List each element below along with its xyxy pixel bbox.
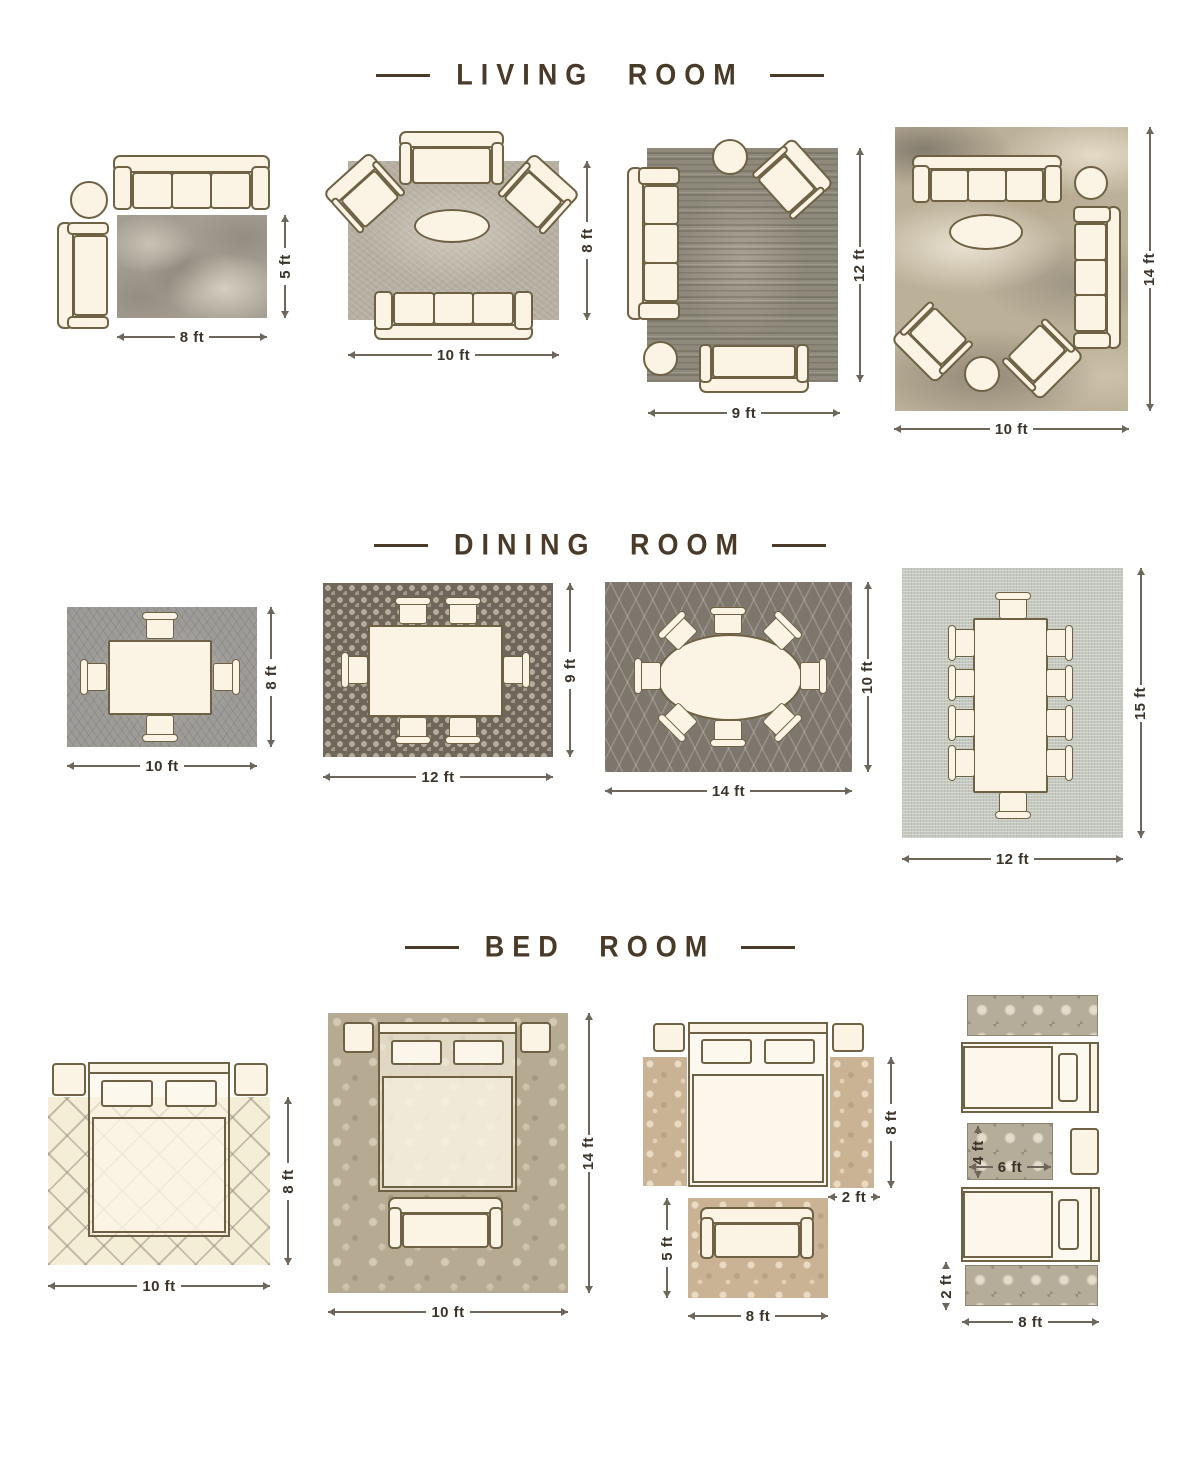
nightstand [52,1063,86,1096]
dimension-label: 12 ft [842,248,879,281]
nightstand [1070,1128,1099,1175]
pillow [101,1080,154,1106]
chair-back [445,597,480,605]
dimension-label: 14 ft [1132,252,1169,285]
sofa-arm [113,166,132,210]
chair-back [1065,745,1073,780]
sofa-back [113,155,270,173]
dimension: 9 ft [648,404,840,422]
dimension-label: 8 ft [569,228,606,253]
nightstand [343,1022,374,1053]
chair-seat [449,602,477,624]
rug [967,995,1098,1036]
title-rule [405,946,459,949]
dining-chair [397,597,429,625]
sofa-cushion [1074,223,1107,261]
dining-chair [948,627,976,659]
dimension-label: 10 ft [140,759,183,774]
coffee-table [949,214,1023,250]
nightstand [234,1063,268,1096]
dimension: 8 ft [578,161,596,320]
chair-seat [953,749,975,777]
chair-back [948,625,956,660]
section-title-bed-room: BED ROOM [0,929,1200,965]
chair-back [445,736,480,744]
sofa-cushion [643,185,679,225]
section-title-living-room: LIVING ROOM [0,57,1200,93]
dining-chair [799,660,827,692]
chair-seat [399,602,427,624]
dining-chair [948,707,976,739]
dimension: 8 ft [279,1097,297,1265]
dimension-label: 8 ft [741,1309,776,1324]
blanket [963,1191,1053,1259]
sofa-arm [638,167,680,185]
dining-chair [447,597,479,625]
chair-back [948,745,956,780]
dining-chair [712,607,744,635]
pillow [764,1039,816,1064]
dimension-label: 8 ft [873,1110,910,1135]
pillow [701,1039,753,1064]
dimension: 10 ft [894,420,1129,438]
dimension: 15 ft [1132,568,1150,838]
pillow [1058,1053,1079,1101]
dining-chair [948,667,976,699]
sofa-back [399,131,504,148]
sofa-arm [699,344,712,383]
dining-chair [1045,667,1073,699]
dimension-label: 8 ft [253,665,290,690]
sofa-arm [489,1207,503,1249]
section-title: DINING ROOM [454,528,746,561]
sofa [912,155,1062,203]
sofa-back [627,167,644,320]
headboard [88,1062,230,1074]
sofa-arm [374,291,393,330]
dining-chair [212,661,240,693]
bed [688,1022,828,1187]
sofa-back [388,1197,503,1214]
dimension-label: 5 ft [649,1236,686,1261]
dimension-label: 2 ft [928,1274,965,1299]
sofa-cushion [1074,259,1107,297]
dining-chair [447,716,479,744]
chair-seat [953,709,975,737]
sofa-arm [1073,206,1111,223]
dining-table [108,640,212,715]
dining-table [973,618,1048,793]
side-table [964,356,1000,392]
sofa [113,155,270,210]
dimension: 14 ft [605,782,852,800]
chair-seat [953,669,975,697]
dimension: 14 ft [1141,127,1159,411]
sofa-arm [67,316,109,329]
sofa-arm [1044,165,1062,203]
sofa-arm [638,302,680,320]
sofa-cushion [412,147,492,184]
sofa-cushion [472,292,514,325]
pillow [391,1040,442,1066]
bench [388,1197,503,1249]
sofa-cushion [171,172,212,209]
sofa-arm [251,166,270,210]
sofa-arm [796,344,809,383]
section-title-dining-room: DINING ROOM [0,527,1200,563]
title-rule [772,544,826,547]
sofa [57,222,109,329]
dimension: 10 ft [67,757,257,775]
blanket [92,1117,225,1233]
dimension: 8 ft [962,1313,1099,1331]
chair-back [522,652,530,687]
dimension: 12 ft [323,768,553,786]
dimension-label: 10 ft [432,348,475,363]
dimension-label: 10 ft [137,1279,180,1294]
twin-bed [961,1187,1100,1262]
title-rule [770,74,824,77]
chair-back [232,659,240,694]
sofa-arm [800,1217,814,1259]
sofa-cushion [714,1223,801,1258]
sofa-arm [399,142,412,185]
sofa-arm [491,142,504,185]
dimension: 10 ft [328,1303,568,1321]
chair-seat [639,662,661,690]
title-rule [741,946,795,949]
sofa-arm [1073,332,1111,349]
dimension-label: 6 ft [993,1160,1028,1175]
headboard [1089,1042,1099,1113]
chair-back [395,736,430,744]
sofa [399,131,504,185]
sofa-cushion [210,172,251,209]
dimension: 8 ft [262,607,280,747]
section-title: LIVING ROOM [456,58,744,91]
dimension-label: 9 ft [727,406,762,421]
bed [378,1022,517,1192]
chair-back [995,592,1030,600]
chair-seat [346,656,368,684]
dining-chair [948,747,976,779]
sofa-cushion [132,172,173,209]
nightstand [520,1022,551,1053]
dimension: 8 ft [688,1307,828,1325]
dining-chair [144,612,176,640]
sofa-arm [67,222,109,235]
dining-chair [80,661,108,693]
rug [643,1057,687,1186]
dimension-label: 8 ft [1013,1315,1048,1330]
bed [88,1062,230,1237]
dimension: 10 ft [348,346,559,364]
dimension: 9 ft [561,583,579,757]
sofa-back [1106,206,1121,349]
chair-back [1065,705,1073,740]
chair-back [948,665,956,700]
sofa-cushion [402,1213,489,1248]
sofa-cushion [967,169,1006,202]
side-table [1074,166,1108,200]
dimension: 8 ft [882,1057,900,1188]
chair-seat [85,663,107,691]
dimension: 10 ft [48,1277,270,1295]
chair-seat [999,597,1027,619]
headboard [688,1022,828,1034]
chair-seat [714,612,742,634]
pillow [453,1040,504,1066]
side-table [70,181,108,219]
dimension-label: 8 ft [270,1169,307,1194]
sofa [699,344,809,393]
dimension: 5 ft [658,1198,676,1298]
chair-back [710,739,745,747]
dimension-label: 5 ft [267,254,304,279]
rug-size-guide: LIVING ROOM DINING ROOM BED ROOM 8 ft5 f… [0,0,1200,1467]
chair-seat [146,617,174,639]
sofa [1073,206,1121,349]
coffee-table [414,209,490,243]
dimension: 2 ft [937,1262,955,1310]
sofa-arm [700,1217,714,1259]
sofa [374,291,533,340]
rug [830,1057,874,1188]
dimension-label: 9 ft [552,658,589,683]
chair-seat [953,629,975,657]
rug [965,1265,1098,1306]
dining-chair [144,714,176,742]
dining-chair [397,716,429,744]
pillow [165,1080,218,1106]
sofa-cushion [1074,294,1107,332]
sofa-cushion [643,223,679,263]
dining-chair [1045,747,1073,779]
sofa-cushion [1005,169,1044,202]
title-rule [376,74,430,77]
bench [700,1207,814,1259]
dimension: 2 ft [828,1188,880,1206]
chair-back [80,659,88,694]
chair-back [710,607,745,615]
dimension-label: 14 ft [707,784,750,799]
headboard [1090,1187,1100,1262]
dining-chair [502,654,530,686]
dimension-label: 2 ft [837,1190,872,1205]
dimension: 14 ft [580,1013,598,1293]
dimension: 12 ft [851,148,869,382]
dimension: 5 ft [276,215,294,318]
section-title: BED ROOM [485,930,716,963]
sofa-back [700,1207,814,1224]
rug [117,215,267,318]
dimension-label: 15 ft [1123,686,1160,719]
blanket [382,1076,513,1188]
chair-back [341,652,349,687]
dining-chair [997,791,1029,819]
sofa-arm [514,291,533,330]
headboard [378,1022,517,1034]
dining-chair [1045,627,1073,659]
sofa-cushion [393,292,435,325]
sofa-back [57,222,74,329]
chair-back [634,658,642,693]
sofa-arm [388,1207,402,1249]
chair-back [1065,625,1073,660]
side-table [712,139,748,175]
chair-back [142,734,177,742]
pillow [1058,1199,1079,1250]
dining-chair [712,719,744,747]
twin-bed [961,1042,1099,1113]
dimension-label: 12 ft [991,852,1034,867]
chair-back [948,705,956,740]
blanket [692,1074,824,1183]
sofa-back [699,377,809,393]
dimension-label: 12 ft [416,770,459,785]
dining-chair [1045,707,1073,739]
dimension: 10 ft [859,582,877,772]
dining-chair [634,660,662,692]
sofa-cushion [73,235,108,316]
dining-chair [341,654,369,686]
dining-chair [997,592,1029,620]
sofa-cushion [643,262,679,302]
chair-back [142,612,177,620]
nightstand [832,1023,864,1052]
side-table [643,341,678,376]
chair-back [819,658,827,693]
sofa-arm [912,165,930,203]
chair-back [1065,665,1073,700]
nightstand [653,1023,685,1052]
dimension-label: 10 ft [426,1305,469,1320]
sofa-cushion [712,345,796,378]
dimension-label: 10 ft [850,660,887,693]
sofa-cushion [930,169,969,202]
chair-back [995,811,1030,819]
dimension: 12 ft [902,850,1123,868]
sofa-back [912,155,1062,170]
dimension-label: 8 ft [175,330,210,345]
dimension-label: 14 ft [571,1136,608,1169]
dining-table [368,625,503,717]
dimension-label: 10 ft [990,422,1033,437]
sofa [627,167,680,320]
sofa-cushion [433,292,475,325]
dimension: 8 ft [117,328,267,346]
chair-back [395,597,430,605]
dimension: 6 ft [969,1158,1051,1176]
title-rule [374,544,428,547]
sofa-back [374,324,533,340]
blanket [963,1046,1053,1110]
